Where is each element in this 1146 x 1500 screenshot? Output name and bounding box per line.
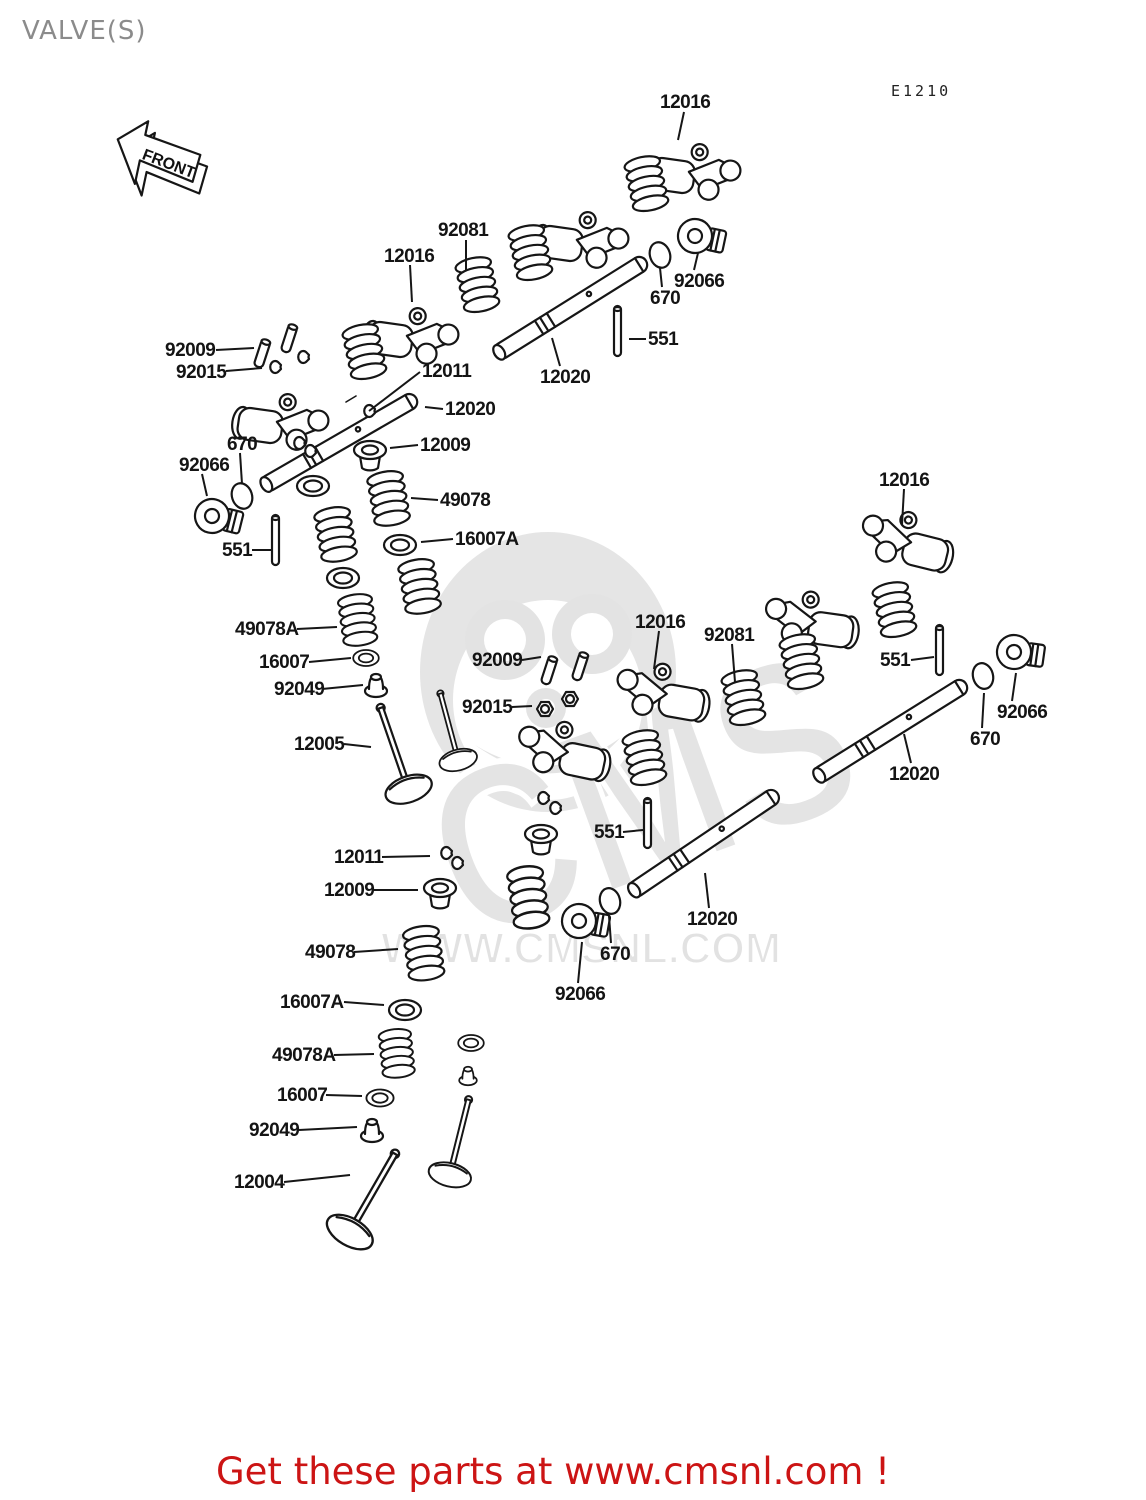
valve (426, 1091, 490, 1191)
part-callout-12004: 12004 (234, 1172, 284, 1194)
plug (995, 633, 1046, 673)
part-callout-92066: 92066 (179, 455, 229, 477)
part-callout-49078A: 49078A (272, 1045, 336, 1067)
part-callout-12020: 12020 (445, 399, 495, 421)
part-callout-12020: 12020 (540, 367, 590, 389)
part-callout-12011: 12011 (422, 361, 471, 383)
spring-seat (353, 650, 379, 666)
stem-cap (281, 323, 298, 353)
leader-line-16007A (421, 539, 453, 542)
part-callout-16007A: 16007A (280, 992, 344, 1014)
valve-spring (366, 469, 411, 528)
leader-line-12011 (382, 856, 430, 857)
part-callout-92015: 92015 (462, 697, 512, 719)
part-callout-12016: 12016 (879, 470, 929, 492)
leader-line-16007 (326, 1095, 362, 1096)
spring-seat (327, 568, 359, 588)
part-callout-670: 670 (970, 729, 1000, 751)
part-callout-12005: 12005 (294, 734, 344, 756)
part-callout-49078A: 49078A (235, 619, 299, 641)
leader-line-12020 (904, 734, 911, 763)
parts-diagram-page: VALVE(S) E1210 CMS WWW.CMSNL.COM (0, 0, 1146, 1500)
valve-keeper (298, 351, 309, 363)
plug (191, 495, 245, 539)
valve-spring (397, 557, 442, 616)
part-callout-12009: 12009 (324, 880, 374, 902)
part-callout-16007: 16007 (277, 1085, 327, 1107)
valve-spring (454, 254, 500, 314)
valve-spring (506, 864, 550, 931)
footer-promo-link[interactable]: Get these parts at www.cmsnl.com ! (216, 1450, 890, 1493)
leader-line-12009 (390, 445, 418, 448)
plug (675, 216, 728, 259)
leader-line-670 (982, 693, 984, 728)
part-callout-551: 551 (222, 540, 252, 562)
valve-spring (402, 924, 445, 982)
part-callout-670: 670 (600, 944, 630, 966)
part-callout-551: 551 (880, 650, 910, 672)
part-callout-92015: 92015 (176, 362, 226, 384)
clip-mark (346, 396, 356, 402)
leader-line-12020 (425, 407, 443, 409)
o-ring (646, 240, 673, 271)
part-callout-670: 670 (650, 288, 680, 310)
valve-spring (337, 592, 378, 648)
spring-seat (366, 1090, 393, 1107)
stem-cap (254, 338, 271, 368)
valve-keeper (538, 792, 549, 804)
part-callout-92009: 92009 (165, 340, 215, 362)
leader-line-670 (660, 268, 662, 287)
part-callout-670: 670 (227, 434, 257, 456)
valve-stem-seal (365, 674, 387, 697)
leader-line-670 (240, 453, 242, 484)
dowel-pin (936, 625, 943, 675)
leader-line-92009 (216, 348, 254, 350)
spring-seat (384, 535, 416, 555)
rocker-shaft (491, 254, 650, 362)
o-ring (228, 481, 255, 512)
leader-line-92066 (694, 253, 698, 270)
leader-line-49078 (411, 498, 438, 500)
valve-keeper (294, 437, 305, 449)
part-callout-12011: 12011 (334, 847, 383, 869)
leader-line-12004 (284, 1175, 350, 1182)
part-callout-12016: 12016 (635, 612, 685, 634)
leader-line-551 (911, 657, 934, 660)
leader-line-92015 (226, 368, 262, 371)
part-callout-12016: 12016 (660, 92, 710, 114)
part-callout-12020: 12020 (687, 909, 737, 931)
part-callout-92066: 92066 (674, 271, 724, 293)
valve-keeper (452, 857, 463, 869)
spring-retainer (354, 441, 386, 470)
leader-line-49078A (297, 627, 337, 629)
part-callout-551: 551 (594, 822, 624, 844)
valve-spring (378, 1028, 415, 1080)
spring-seat (297, 476, 329, 496)
leader-line-92049 (322, 685, 363, 689)
valve-spring (313, 505, 358, 564)
spring-seat (458, 1035, 484, 1051)
part-callout-92049: 92049 (274, 679, 324, 701)
leader-line-92049 (299, 1127, 357, 1130)
leader-line-92066 (1012, 673, 1016, 701)
valve-stem-seal (459, 1067, 477, 1085)
leader-line-16007 (309, 658, 351, 662)
part-callout-49078: 49078 (440, 490, 490, 512)
adjuster-nut (537, 702, 553, 716)
leader-line-12016 (410, 265, 412, 302)
part-callout-92049: 92049 (249, 1120, 299, 1142)
leader-line-12016 (678, 112, 684, 140)
adjuster-nut (562, 692, 578, 706)
part-callout-92066: 92066 (555, 984, 605, 1006)
part-callout-12016: 12016 (384, 246, 434, 268)
part-callout-551: 551 (648, 329, 678, 351)
rocker-arm (856, 502, 961, 577)
leader-line-16007A (344, 1002, 384, 1005)
valve-stem-seal (361, 1119, 383, 1142)
valve (321, 1138, 419, 1257)
part-callout-16007: 16007 (259, 652, 309, 674)
spring-seat (389, 1000, 421, 1020)
leader-line-12020 (552, 338, 560, 366)
valve-keeper (441, 847, 452, 859)
valve-spring (871, 579, 917, 639)
dowel-pin (614, 306, 621, 356)
leader-line-12005 (344, 744, 371, 747)
dowel-pin (644, 798, 651, 848)
valve-keeper (550, 802, 561, 814)
part-callout-92081: 92081 (704, 625, 754, 647)
dowel-pin (272, 515, 279, 565)
front-arrow: FRONT (107, 116, 213, 208)
o-ring (970, 661, 996, 691)
part-callout-16007A: 16007A (455, 529, 519, 551)
valve-keeper (305, 445, 316, 457)
leader-line-49078A (334, 1054, 374, 1055)
part-callout-92009: 92009 (472, 650, 522, 672)
leader-line-92015 (512, 706, 532, 707)
part-callout-49078: 49078 (305, 942, 355, 964)
spring-retainer (424, 879, 456, 908)
leader-line-92066 (202, 474, 207, 496)
part-callout-12009: 12009 (420, 435, 470, 457)
valve-keeper (270, 361, 281, 373)
part-callout-12020: 12020 (889, 764, 939, 786)
part-callout-92081: 92081 (438, 220, 488, 242)
part-callout-92066: 92066 (997, 702, 1047, 724)
